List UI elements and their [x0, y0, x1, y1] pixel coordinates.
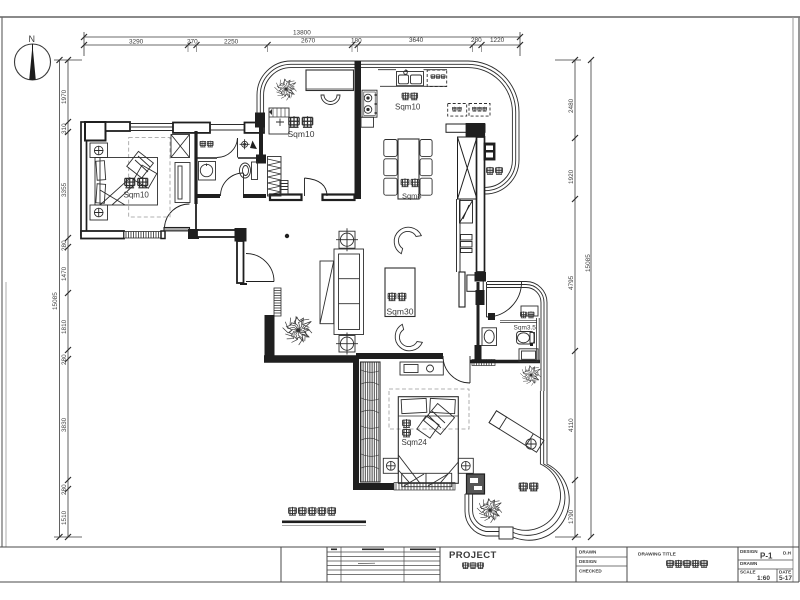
svg-text:Sqm10: Sqm10	[124, 191, 150, 200]
svg-text:4110: 4110	[568, 418, 575, 432]
svg-text:Sqm24: Sqm24	[402, 438, 428, 447]
svg-text:280: 280	[61, 240, 68, 251]
svg-text:280: 280	[471, 37, 482, 44]
svg-text:DESIGN: DESIGN	[740, 549, 758, 554]
svg-text:15085: 15085	[585, 254, 592, 272]
svg-text:Sqm3.5: Sqm3.5	[514, 325, 537, 332]
svg-text:1810: 1810	[61, 319, 68, 334]
svg-text:1220: 1220	[490, 37, 505, 44]
svg-text:1970: 1970	[61, 89, 68, 104]
svg-text:5-17: 5-17	[779, 575, 792, 582]
svg-text:SCALE: SCALE	[740, 570, 756, 575]
svg-text:DATE: DATE	[779, 570, 791, 575]
svg-text:180: 180	[351, 38, 362, 45]
svg-text:13800: 13800	[293, 30, 311, 37]
svg-text:N: N	[29, 34, 36, 44]
svg-text:280: 280	[61, 354, 68, 365]
svg-text:DRAWN: DRAWN	[579, 550, 597, 555]
svg-text:Sqm8: Sqm8	[402, 192, 422, 201]
svg-text:15085: 15085	[52, 292, 59, 310]
svg-text:1510: 1510	[61, 510, 68, 525]
svg-text:310: 310	[61, 123, 68, 134]
svg-text:3640: 3640	[409, 37, 424, 44]
svg-text:1920: 1920	[568, 169, 575, 184]
svg-text:P-1: P-1	[760, 552, 773, 561]
svg-text:270: 270	[187, 39, 198, 46]
svg-text:1470: 1470	[61, 266, 68, 281]
svg-text:Sqm10: Sqm10	[288, 129, 315, 139]
svg-text:DRAWN: DRAWN	[740, 561, 758, 566]
svg-text:2250: 2250	[224, 39, 239, 46]
svg-text:CHECKED: CHECKED	[579, 569, 602, 574]
svg-text:1790: 1790	[568, 509, 575, 524]
svg-text:Sqm10: Sqm10	[395, 103, 421, 112]
svg-text:3830: 3830	[61, 417, 68, 432]
svg-text:PROJECT: PROJECT	[449, 550, 497, 561]
svg-text:1:60: 1:60	[757, 575, 770, 582]
svg-text:DESIGN: DESIGN	[579, 559, 597, 564]
svg-text:280: 280	[61, 484, 68, 495]
svg-text:2480: 2480	[568, 98, 575, 113]
svg-text:4795: 4795	[568, 275, 575, 290]
svg-text:Sqm30: Sqm30	[387, 307, 414, 317]
svg-text:2670: 2670	[301, 38, 316, 45]
svg-text:3290: 3290	[129, 39, 144, 46]
svg-text:D.H: D.H	[783, 551, 792, 556]
svg-text:DRAWING TITLE: DRAWING TITLE	[638, 552, 677, 558]
svg-text:3355: 3355	[61, 182, 68, 197]
